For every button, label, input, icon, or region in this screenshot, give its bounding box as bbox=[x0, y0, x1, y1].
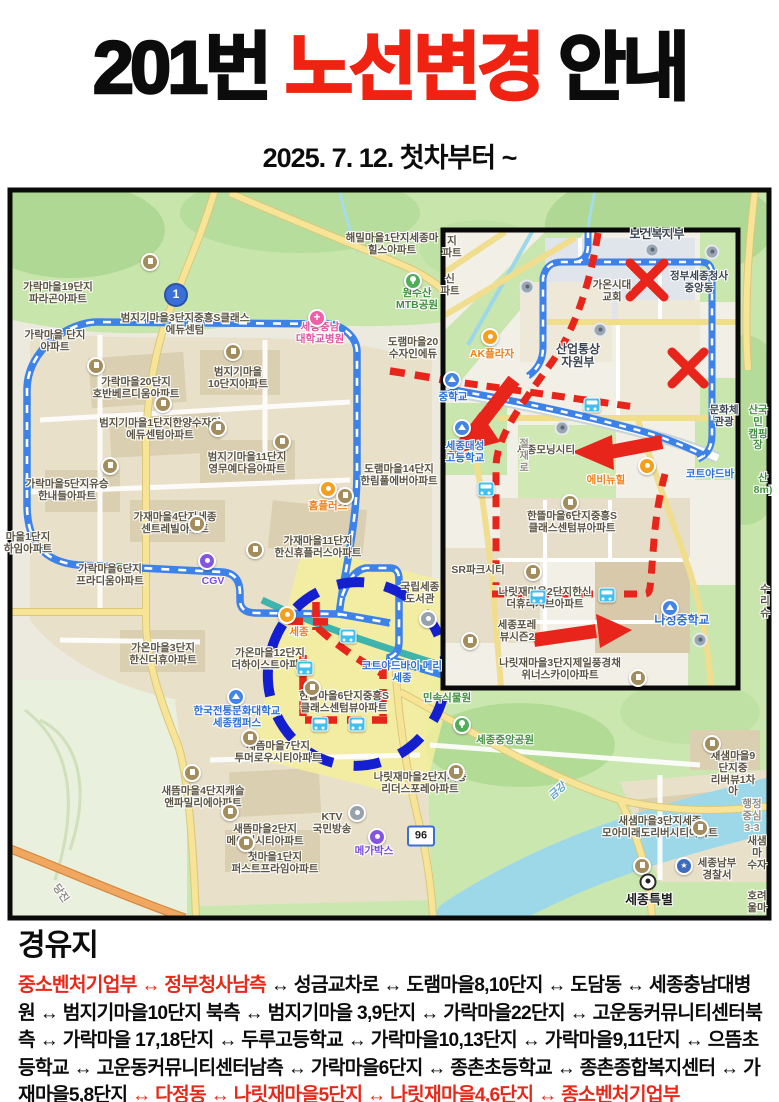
stop-list-heading: 경유지 bbox=[18, 920, 766, 964]
road-96-badge: 96 bbox=[407, 826, 435, 847]
bus-route-change-poster: 201번 노선변경 안내 2025. 7. 12. 첫차부터 ~ bbox=[0, 0, 779, 1102]
stop-list-section: 경유지 중소벤처기업부 ↔ 정부청사남측 ↔ 성금교차로 ↔ 도램마을8,10단… bbox=[18, 920, 766, 1102]
road-1-badge: 1 bbox=[164, 283, 188, 307]
stop-list-end-red: ↔ 다정동 ↔ 나릿재마을5단지 ↔ 나릿재마을4,6단지 ↔ 종소벤처기업부 bbox=[132, 1085, 680, 1102]
stop-list-start-red: 중소벤처기업부 ↔ 정부청사남측 bbox=[18, 975, 266, 996]
stop-list: 중소벤처기업부 ↔ 정부청사남측 ↔ 성금교차로 ↔ 도램마을8,10단지 ↔ … bbox=[18, 972, 766, 1102]
